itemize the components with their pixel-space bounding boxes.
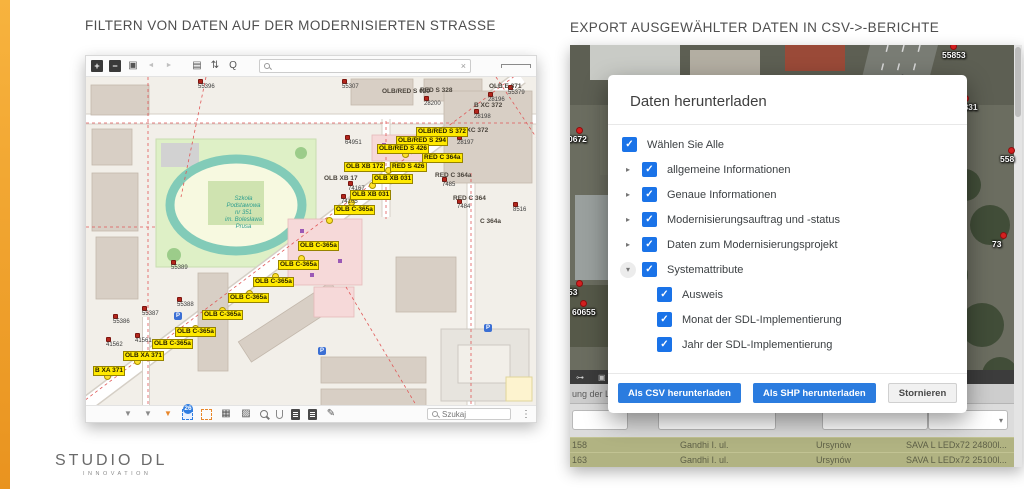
dialog-checkbox-list: ✓ Wählen Sie Alle ▸ ✓ allgemeine Informa… <box>608 132 967 357</box>
table-search-input[interactable] <box>442 410 506 419</box>
street-code-label: OLB XB 17 <box>324 175 358 182</box>
map-point-marker[interactable]: 64951 <box>345 135 362 146</box>
dialog-checkbox-row: ✓ Wählen Sie Alle <box>608 132 967 157</box>
checkbox-checked-icon[interactable]: ✓ <box>642 162 657 177</box>
dialog-checkbox-row: ✓ Jahr der SDL-Implementierung <box>608 332 967 357</box>
map-point-marker[interactable]: 55387 <box>142 306 159 317</box>
search-icon <box>264 63 270 69</box>
street-code-label: C 364a <box>480 218 501 225</box>
red-dot-icon <box>576 280 583 287</box>
scrollbar-thumb[interactable] <box>1015 47 1021 117</box>
selection-count-badge: 26 <box>183 404 193 414</box>
checkbox-label: Monat der SDL-Implementierung <box>682 314 842 326</box>
studio-dl-logo: STUDIO DL INNOVATION <box>55 452 167 477</box>
checkbox-label: Ausweis <box>682 289 723 301</box>
checkbox-label: Genaue Informationen <box>667 189 776 201</box>
map-point-marker[interactable]: 55386 <box>113 314 130 325</box>
scrollbar[interactable] <box>1014 45 1022 467</box>
street-code-label: B XC 372 <box>474 102 502 109</box>
search-icon <box>432 411 438 417</box>
dialog-checkbox-row: ▸ ✓ Daten zum Modernisierungsprojekt <box>608 232 967 257</box>
map-point-marker[interactable]: 28198 <box>474 109 491 120</box>
download-dialog: Daten herunterladen ✓ Wählen Sie Alle ▸ … <box>608 75 967 413</box>
map-point-marker[interactable]: 55388 <box>177 297 194 308</box>
edit-icon[interactable]: ✎ <box>325 408 337 420</box>
map-top-toolbar: +−▣◄►▤⇅Q × <box>86 56 536 77</box>
map-search-input[interactable] <box>274 62 457 71</box>
image-icon[interactable]: ▨ <box>240 408 252 420</box>
table-row[interactable]: 163 Gandhi I. ul. Ursynów SAVA L LEDx72 … <box>570 452 1014 467</box>
filter-input-street[interactable] <box>658 410 776 430</box>
logo-text: STUDIO DL <box>55 452 167 470</box>
checkbox-label: Daten zum Modernisierungsprojekt <box>667 239 838 251</box>
zoom-out-icon[interactable]: − <box>109 60 121 72</box>
chevron-down-icon: ▾ <box>999 416 1003 425</box>
red-dot-icon <box>1000 232 1007 239</box>
highlighted-lamp-label[interactable]: B XA 371 <box>93 366 125 376</box>
highlighted-lamp-label[interactable]: OLB C-365a <box>253 277 294 287</box>
layers-icon[interactable]: ▣ <box>598 373 606 382</box>
zoom-in-icon[interactable]: + <box>91 60 103 72</box>
satellite-point-marker[interactable]: 55853 <box>942 45 966 60</box>
table-icon[interactable]: ▦ <box>220 408 232 420</box>
sort-icon[interactable]: ⇅ <box>209 60 221 72</box>
expander-icon[interactable]: ▸ <box>620 187 636 203</box>
checkbox-checked-icon[interactable]: ✓ <box>642 187 657 202</box>
checkbox-label: Systemattribute <box>667 264 743 276</box>
accent-stripe <box>0 0 10 489</box>
map-point-marker[interactable]: 55389 <box>171 260 188 271</box>
parking-icon: P <box>174 312 182 320</box>
search-small-icon[interactable] <box>260 410 268 418</box>
map-bottom-toolbar-icons: ▼▼▼▦▨✎ <box>122 408 337 420</box>
highlighted-lamp-label[interactable]: OLB XA 371 <box>123 351 164 361</box>
document-icon[interactable] <box>291 409 300 420</box>
logo-subtext: INNOVATION <box>83 471 167 477</box>
dialog-checkbox-row: ▸ ✓ allgemeine Informationen <box>608 157 967 182</box>
prev-view-icon[interactable]: ◄ <box>145 60 157 72</box>
map-point-marker[interactable]: 55307 <box>342 79 359 90</box>
highlighted-lamp-label[interactable]: OLB C-365a <box>202 310 243 320</box>
dialog-divider <box>608 124 967 125</box>
highlighted-lamp-label[interactable]: RED S 426 <box>390 162 427 172</box>
clear-search-icon[interactable]: × <box>461 61 466 71</box>
filter-edit-icon[interactable]: ▼ <box>142 408 154 420</box>
map-point-marker[interactable]: 41562 <box>106 337 123 348</box>
checkbox-checked-icon[interactable]: ✓ <box>642 212 657 227</box>
expander-icon[interactable]: ▸ <box>620 162 636 178</box>
highlighted-lamp-label[interactable]: OLB XB 031 <box>372 174 413 184</box>
highlighted-lamp-label[interactable]: OLB C-365a <box>298 241 339 251</box>
map-application-window: +−▣◄►▤⇅Q × <box>85 55 537 423</box>
parking-icon: P <box>484 324 492 332</box>
street-code-label: OLB E 371 <box>489 83 522 90</box>
highlighted-lamp-label[interactable]: OLB C-365a <box>278 260 319 270</box>
highlighted-lamp-label[interactable]: OLB XB 172 <box>344 162 385 172</box>
highlighted-lamp-label[interactable]: OLB XB 031 <box>350 190 391 200</box>
dialog-buttons: Als CSV herunterladen Als SHP herunterla… <box>618 383 957 403</box>
highlighted-lamp-label[interactable]: OLB C-365a <box>334 205 375 215</box>
map-bottom-toolbar: 26 ▼▼▼▦▨✎ ⋮ <box>86 405 536 422</box>
checkbox-checked-icon[interactable]: ✓ <box>622 137 637 152</box>
attachment-icon[interactable] <box>276 410 283 419</box>
filter-icon[interactable]: ▼ <box>122 408 134 420</box>
cancel-button[interactable]: Stornieren <box>888 383 958 403</box>
expander-icon[interactable]: ▸ <box>620 237 636 253</box>
filter-active-icon[interactable]: ▼ <box>162 408 174 420</box>
map-point-marker[interactable]: 41561 <box>135 333 152 344</box>
dialog-title: Daten herunterladen <box>630 93 767 110</box>
checkbox-label: Wählen Sie Alle <box>647 139 724 151</box>
right-section-title: EXPORT AUSGEWÄHLTER DATEN IN CSV->-BERIC… <box>570 19 1020 36</box>
parking-icon: P <box>318 347 326 355</box>
next-view-icon[interactable]: ► <box>163 60 175 72</box>
checkbox-label: Modernisierungsauftrag und -status <box>667 214 840 226</box>
checkbox-checked-icon[interactable]: ✓ <box>642 262 657 277</box>
checkbox-label: allgemeine Informationen <box>667 164 791 176</box>
left-section-title: FILTERN VON DATEN AUF DER MODERNISIERTEN… <box>85 17 525 34</box>
document-copy-icon[interactable] <box>308 409 317 420</box>
print-icon[interactable]: ▤ <box>191 60 203 72</box>
map-point-marker[interactable]: 28200 <box>424 96 441 107</box>
select-area-alt-icon[interactable] <box>201 409 212 420</box>
checkbox-checked-icon[interactable]: ✓ <box>657 337 672 352</box>
zoom-search-icon[interactable]: Q <box>227 60 239 72</box>
download-csv-button[interactable]: Als CSV herunterladen <box>618 383 741 403</box>
satellite-point-marker[interactable]: 0672 <box>570 127 587 144</box>
map-top-toolbar-icons: +−▣◄►▤⇅Q <box>91 60 239 72</box>
highlighted-lamp-label[interactable]: OLB C-365a <box>175 327 216 337</box>
map-point-marker[interactable]: 8516 <box>513 202 526 213</box>
map-search-box: × <box>259 59 471 73</box>
lamp-point-icon[interactable] <box>326 217 333 224</box>
satellite-point-marker[interactable]: 53 <box>570 280 583 297</box>
map-point-marker[interactable]: 55396 <box>198 79 215 90</box>
dialog-checkbox-row: ✓ Ausweis <box>608 282 967 307</box>
filter-input-number[interactable] <box>572 410 628 430</box>
highlighted-lamp-label[interactable]: OLB C-365a <box>228 293 269 303</box>
checkbox-label: Jahr der SDL-Implementierung <box>682 339 832 351</box>
dialog-checkbox-row: ▸ ✓ Genaue Informationen <box>608 182 967 207</box>
table-row[interactable]: 158 Gandhi I. ul. Ursynów SAVA L LEDx72 … <box>570 437 1014 452</box>
dialog-checkbox-row: ▾ ✓ Systemattribute <box>608 257 967 282</box>
satellite-point-marker[interactable]: 60655 <box>572 300 596 317</box>
more-options-icon[interactable]: ⋮ <box>521 409 531 420</box>
dialog-checkbox-row: ▸ ✓ Modernisierungsauftrag und -status <box>608 207 967 232</box>
download-shp-button[interactable]: Als SHP herunterladen <box>753 383 876 403</box>
dialog-footer-divider <box>608 373 967 374</box>
satellite-point-marker[interactable]: 73 <box>992 232 1007 249</box>
expander-icon[interactable]: ▸ <box>620 212 636 228</box>
scale-bar <box>501 64 531 68</box>
export-app-panel: 55853 55831 558 73 <box>570 45 1022 467</box>
filter-dropdown-catalog[interactable]: ▾ <box>928 410 1008 430</box>
checkbox-checked-icon[interactable]: ✓ <box>657 312 672 327</box>
highlighted-lamp-label[interactable]: RED C 364a <box>422 153 463 163</box>
street-code-label: RED C 364a <box>435 172 472 179</box>
large-building-block <box>441 329 532 401</box>
filter-input-district[interactable] <box>822 410 928 430</box>
street-code-label: OLB/RED S 020 <box>382 88 430 95</box>
red-dot-icon <box>1008 147 1015 154</box>
street-code-label: RED C 364 <box>453 195 486 202</box>
satellite-point-marker[interactable]: 558 <box>1000 147 1015 164</box>
table-search-box <box>427 408 511 420</box>
fullscreen-icon[interactable]: ▣ <box>127 60 139 72</box>
checkbox-checked-icon[interactable]: ✓ <box>642 237 657 252</box>
red-dot-icon <box>576 127 583 134</box>
red-dot-icon <box>580 300 587 307</box>
street-map-canvas[interactable]: SzkołaPodstawowanr 351im. BolesławaPrusa… <box>86 77 536 405</box>
expander-icon[interactable]: ▾ <box>620 262 636 278</box>
link-icon[interactable]: ⊶ <box>576 373 584 382</box>
school-label: SzkołaPodstawowanr 351im. BolesławaPrusa <box>186 196 301 231</box>
dialog-checkbox-row: ✓ Monat der SDL-Implementierung <box>608 307 967 332</box>
highlighted-lamp-label[interactable]: OLB C-365a <box>152 339 193 349</box>
checkbox-checked-icon[interactable]: ✓ <box>657 287 672 302</box>
